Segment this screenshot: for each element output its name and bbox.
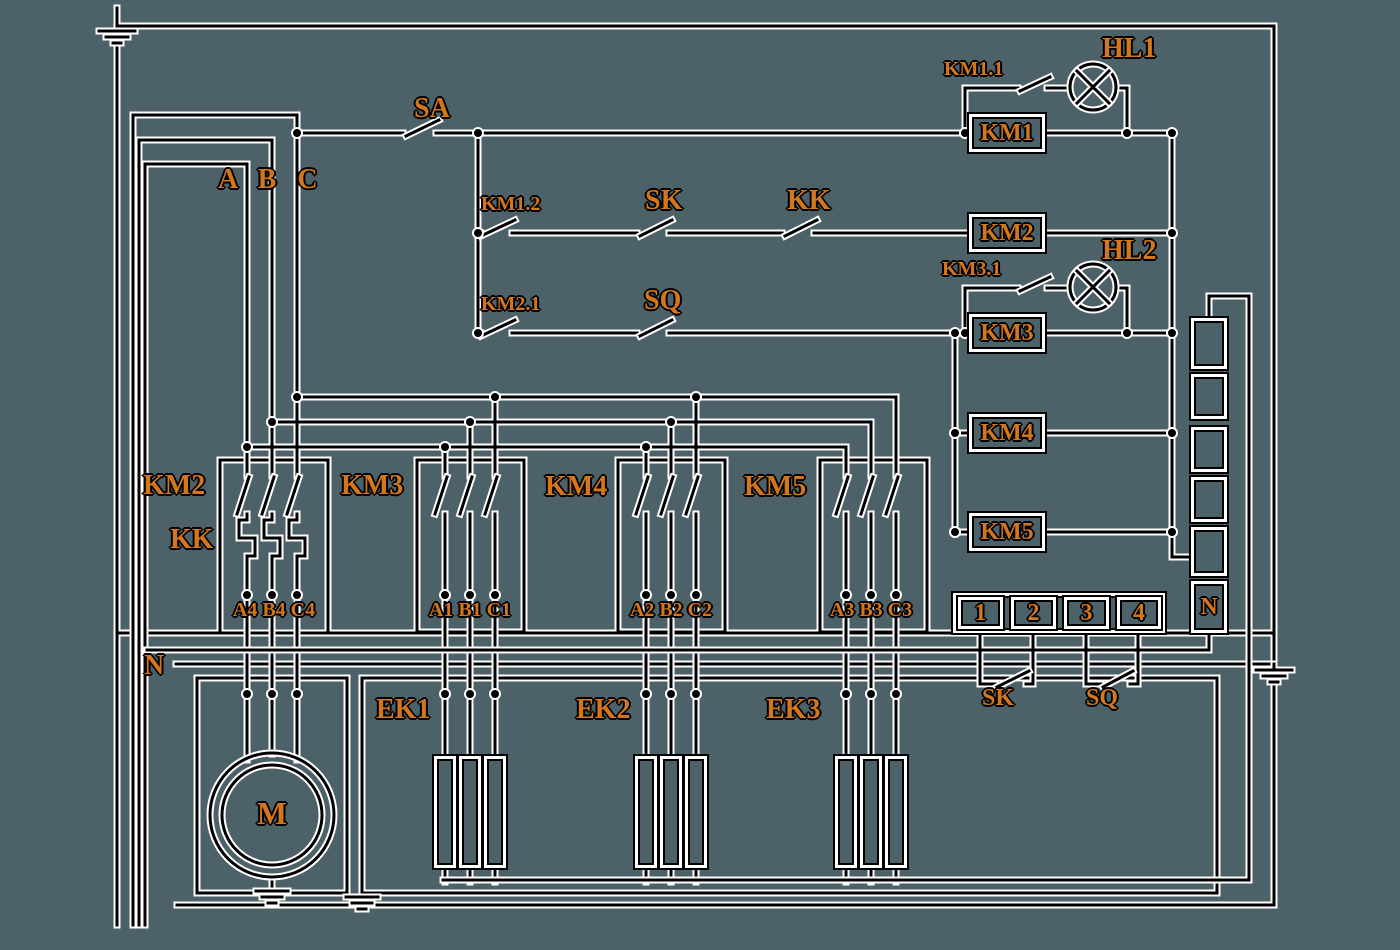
block-kk-label: KK bbox=[170, 526, 214, 554]
ek3-element-2 bbox=[860, 756, 882, 868]
ek3-element-1 bbox=[835, 756, 857, 868]
contact-km11-label: KM1.1 bbox=[944, 59, 1003, 79]
contact-km31-label: KM3.1 bbox=[942, 259, 1001, 279]
terminal-4: 4 bbox=[1117, 597, 1161, 629]
circuit-diagram: KM1 KM2 KM3 KM4 KM5 1 2 3 4 N A B C SA K… bbox=[0, 0, 1400, 950]
ek2-element-3 bbox=[685, 756, 707, 868]
coil-km2-label: KM2 bbox=[980, 221, 1033, 245]
block-km5-label: KM5 bbox=[744, 473, 806, 501]
switch-sk-bottom-label: SK bbox=[982, 686, 1014, 710]
block-km5-terminals-label: A3 B3 C3 bbox=[819, 600, 923, 620]
terminal-4-label: 4 bbox=[1133, 601, 1145, 625]
neutral-rail-label: N bbox=[144, 652, 164, 680]
coil-km1: KM1 bbox=[969, 114, 1045, 152]
strip-terminal-1 bbox=[1191, 318, 1227, 369]
lamp-hl1-label: HL1 bbox=[1102, 35, 1156, 63]
terminal-3-label: 3 bbox=[1081, 601, 1093, 625]
strip-terminal-4 bbox=[1191, 477, 1227, 522]
coil-km3-label: KM3 bbox=[980, 321, 1033, 345]
switch-sq-bottom-label: SQ bbox=[1086, 686, 1118, 710]
ek3-element-3 bbox=[885, 756, 907, 868]
strip-terminal-3 bbox=[1191, 427, 1227, 472]
heater-ek1-label: EK1 bbox=[376, 696, 430, 724]
contact-kk-label: KK bbox=[787, 187, 831, 215]
coil-km5: KM5 bbox=[969, 513, 1045, 551]
strip-terminal-5 bbox=[1191, 527, 1227, 576]
phase-bus-label: A B C bbox=[218, 166, 325, 194]
strip-terminal-2 bbox=[1191, 374, 1227, 419]
contact-sk-label: SK bbox=[645, 187, 682, 215]
coil-km4: KM4 bbox=[969, 414, 1045, 452]
strip-terminal-n: N bbox=[1191, 581, 1227, 633]
heater-ek3-label: EK3 bbox=[766, 696, 820, 724]
contact-sq-label: SQ bbox=[644, 287, 681, 315]
coil-km5-label: KM5 bbox=[980, 520, 1033, 544]
terminal-2-label: 2 bbox=[1028, 601, 1040, 625]
contact-km12-label: KM1.2 bbox=[481, 194, 540, 214]
switch-sa-label: SA bbox=[414, 95, 450, 123]
ek2-element-2 bbox=[660, 756, 682, 868]
block-km4-terminals-label: A2 B2 C2 bbox=[619, 600, 723, 620]
heater-ek2-label: EK2 bbox=[576, 696, 630, 724]
strip-terminal-n-label: N bbox=[1200, 595, 1217, 619]
ek2-element-1 bbox=[635, 756, 657, 868]
ek1-element-2 bbox=[459, 756, 481, 868]
motor-label: M bbox=[242, 797, 302, 829]
coil-km4-label: KM4 bbox=[980, 421, 1033, 445]
ek1-element-3 bbox=[484, 756, 506, 868]
ek1-element-1 bbox=[434, 756, 456, 868]
block-km3-terminals-label: A1 B1 C1 bbox=[418, 600, 522, 620]
terminal-2: 2 bbox=[1011, 597, 1056, 629]
coil-km1-label: KM1 bbox=[980, 121, 1033, 145]
block-km4-label: KM4 bbox=[545, 473, 607, 501]
terminal-1-label: 1 bbox=[975, 601, 987, 625]
coil-km3: KM3 bbox=[969, 314, 1045, 352]
terminal-3: 3 bbox=[1064, 597, 1109, 629]
lamp-hl2-label: HL2 bbox=[1102, 237, 1156, 265]
contact-km21-label: KM2.1 bbox=[481, 294, 540, 314]
coil-km2: KM2 bbox=[969, 214, 1045, 252]
block-km2-terminals-label: A4 B4 C4 bbox=[222, 600, 326, 620]
block-km3-label: KM3 bbox=[341, 472, 403, 500]
block-km2-label: KM2 bbox=[143, 472, 205, 500]
terminal-1: 1 bbox=[958, 597, 1003, 629]
